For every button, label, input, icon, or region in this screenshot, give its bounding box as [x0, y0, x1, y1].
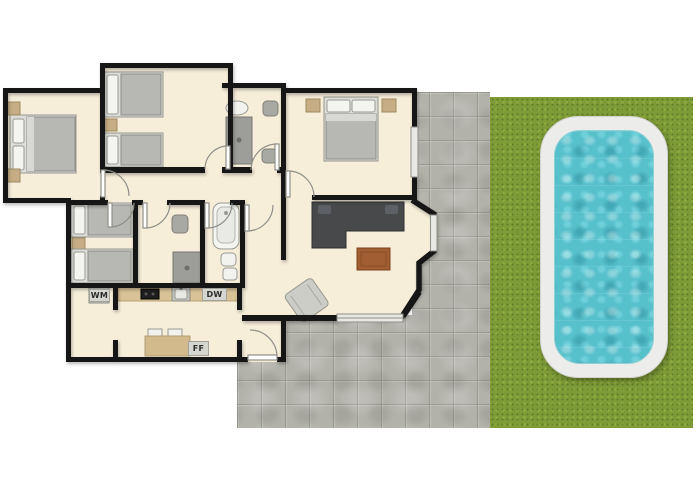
window-master [411, 127, 418, 177]
wall [3, 88, 105, 93]
pillow [352, 100, 375, 112]
wall [281, 83, 286, 200]
door-leaf [245, 205, 249, 231]
blanket [121, 135, 161, 165]
wall [100, 167, 205, 173]
wall [3, 198, 71, 203]
bed-single-2 [104, 133, 163, 167]
cooktop-burner [145, 293, 148, 296]
bed-double-master [324, 97, 378, 161]
wall [412, 177, 417, 200]
washing-machine-label: WM [89, 289, 110, 302]
shower-drain [237, 138, 242, 143]
wall [281, 195, 286, 260]
blanket [27, 117, 75, 171]
blanket-fold [326, 114, 376, 121]
dining-table [145, 336, 190, 356]
wall [100, 63, 105, 170]
wall [242, 315, 337, 321]
wall [240, 200, 245, 287]
fridge-freezer-label: FF [188, 341, 209, 356]
floor-plan: WM DW FF [0, 0, 700, 500]
wall [200, 200, 205, 287]
wall [167, 200, 205, 205]
wall [412, 88, 417, 127]
wall [3, 88, 8, 203]
door-leaf [275, 144, 279, 170]
door-leaf [205, 203, 209, 228]
blanket-fold [27, 117, 34, 171]
pillow [107, 136, 118, 164]
toilet [263, 101, 278, 116]
nightstand [7, 102, 20, 115]
door-leaf [286, 171, 290, 197]
shower-drain [185, 266, 190, 271]
bed-double-left [10, 115, 76, 173]
nightstand [7, 169, 20, 182]
nightstand [72, 238, 85, 249]
blanket [121, 74, 161, 115]
cooktop-burner [152, 293, 155, 296]
bed-single-4 [71, 249, 133, 283]
dishwasher-label: DW [202, 288, 227, 301]
sofa-cushion [318, 205, 331, 214]
wall [281, 88, 417, 93]
sink [223, 268, 237, 280]
window-bay [431, 215, 438, 251]
nightstand [104, 119, 117, 131]
kitchen-sink-basin [175, 289, 187, 299]
door-leaf [226, 146, 230, 169]
bed-single-1 [104, 72, 163, 117]
toilet [221, 253, 236, 266]
door-leaf [108, 203, 112, 227]
bed-single-3 [71, 203, 133, 237]
cooktop [141, 289, 159, 299]
coffee-table [357, 248, 390, 270]
pillow [13, 119, 24, 143]
sofa-cushion [385, 205, 398, 214]
wall [237, 340, 242, 362]
pillow [107, 75, 118, 114]
pillow [13, 146, 24, 170]
nightstand [306, 99, 320, 112]
sink [172, 215, 188, 233]
pillow [327, 100, 350, 112]
door-leaf [143, 203, 147, 228]
wall [66, 357, 248, 362]
door-leaf [101, 170, 105, 197]
wall [133, 200, 138, 287]
wall [281, 315, 286, 362]
bathtub-drain [224, 211, 228, 215]
house-plan-graphics [0, 0, 700, 500]
wall [312, 195, 417, 200]
pillow [74, 206, 85, 234]
door-leaf-entry [248, 355, 277, 360]
wall [66, 200, 71, 362]
wall [113, 340, 118, 362]
wall [113, 283, 118, 310]
pillow [74, 252, 85, 280]
wall [237, 283, 242, 310]
wall [100, 63, 233, 68]
nightstand [382, 99, 396, 112]
blanket [88, 251, 131, 281]
